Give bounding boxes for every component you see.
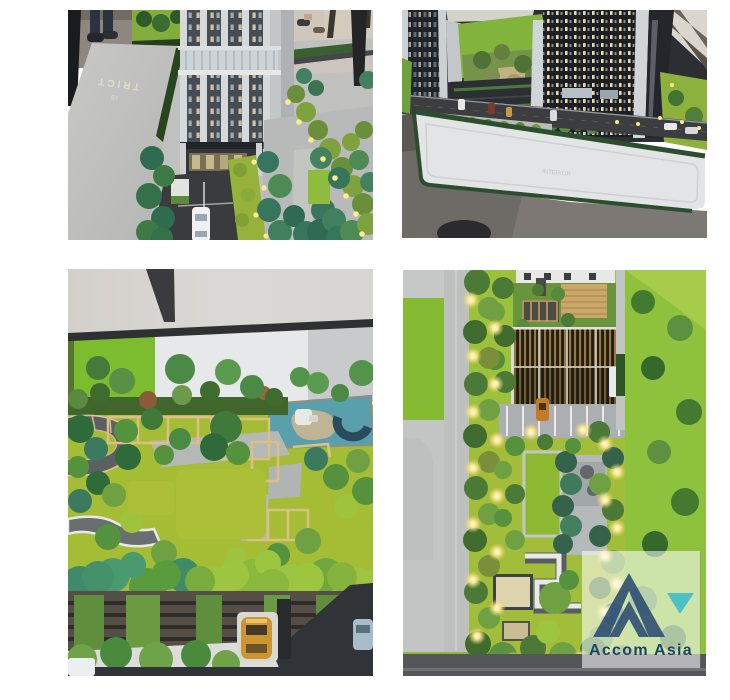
svg-text:IS: IS — [110, 93, 118, 100]
